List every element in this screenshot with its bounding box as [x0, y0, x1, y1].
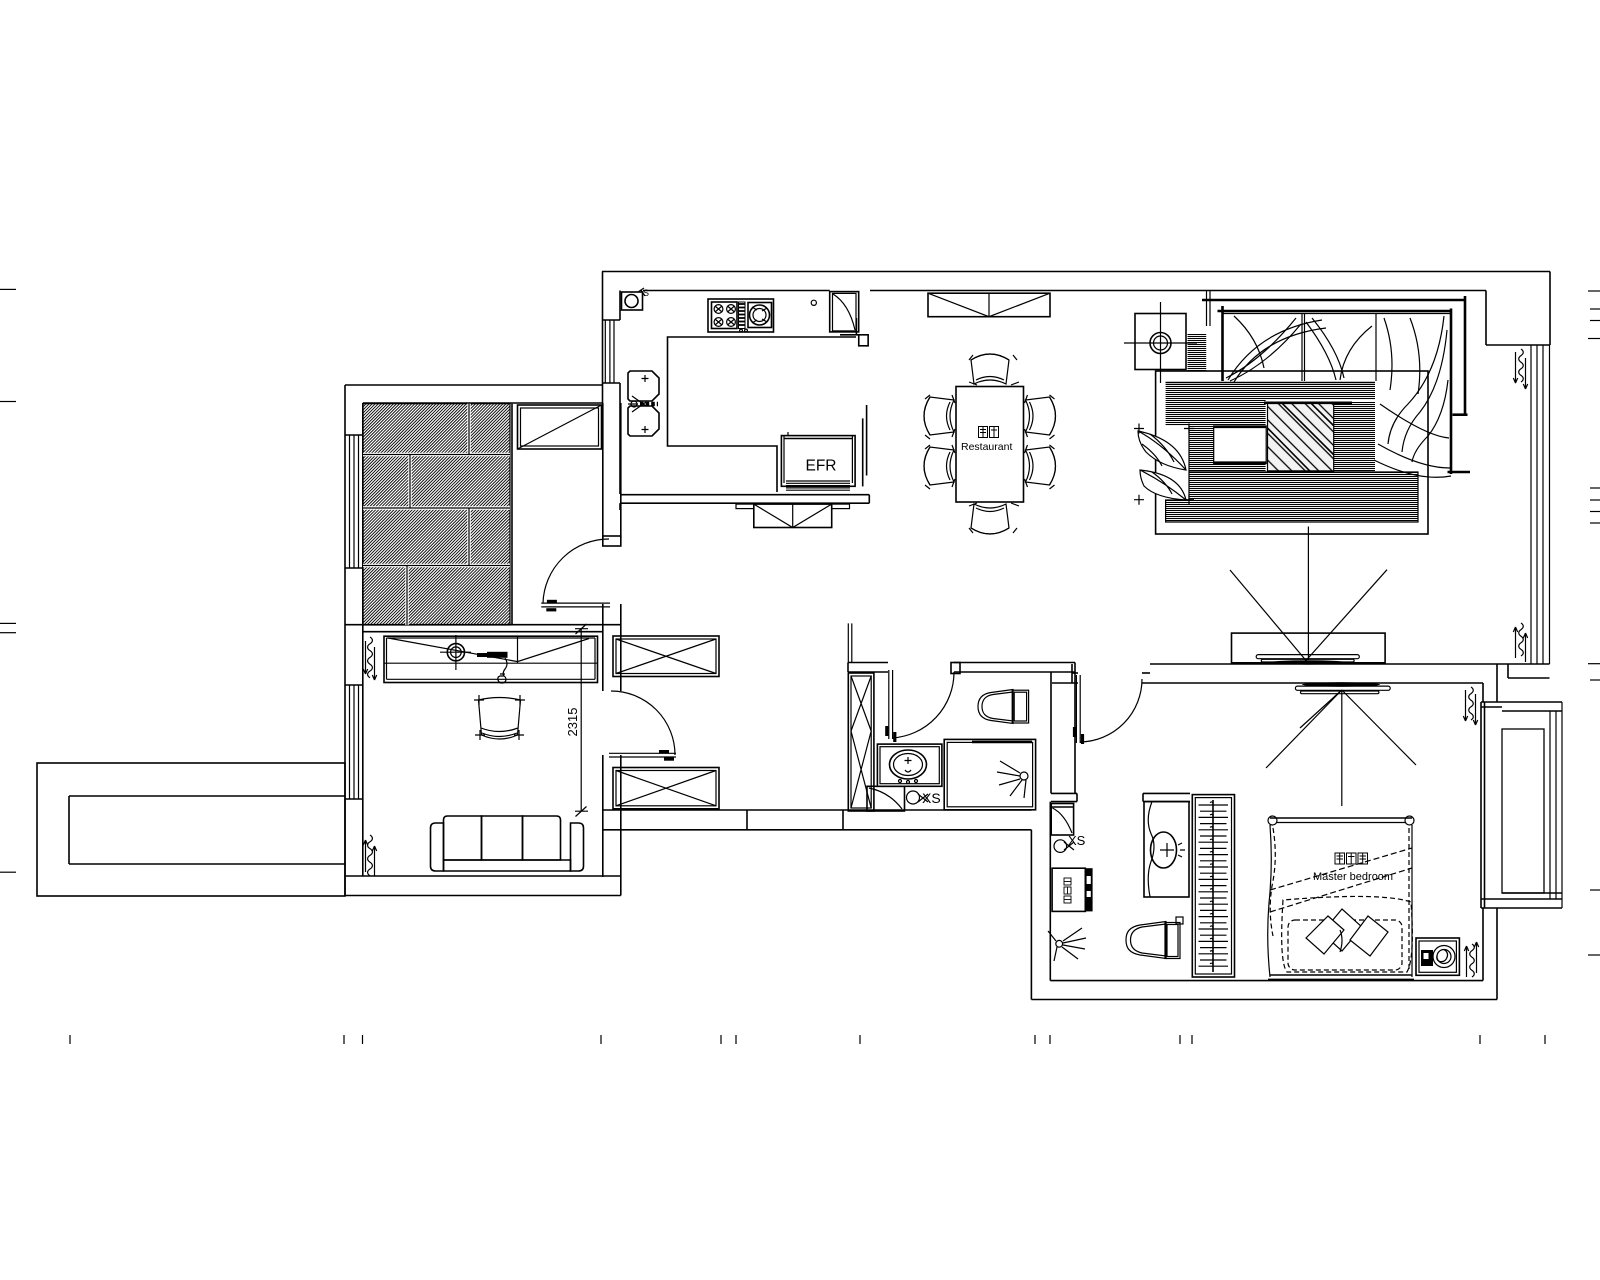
svg-text:XS: XS [922, 790, 941, 806]
svg-text:S: S [643, 288, 649, 298]
svg-text:2315: 2315 [565, 708, 580, 737]
svg-text:Master bedroom: Master bedroom [1313, 871, 1393, 883]
svg-text:EFR: EFR [806, 458, 837, 475]
svg-text:XS: XS [1068, 833, 1086, 848]
svg-text:Restaurant: Restaurant [961, 441, 1012, 453]
